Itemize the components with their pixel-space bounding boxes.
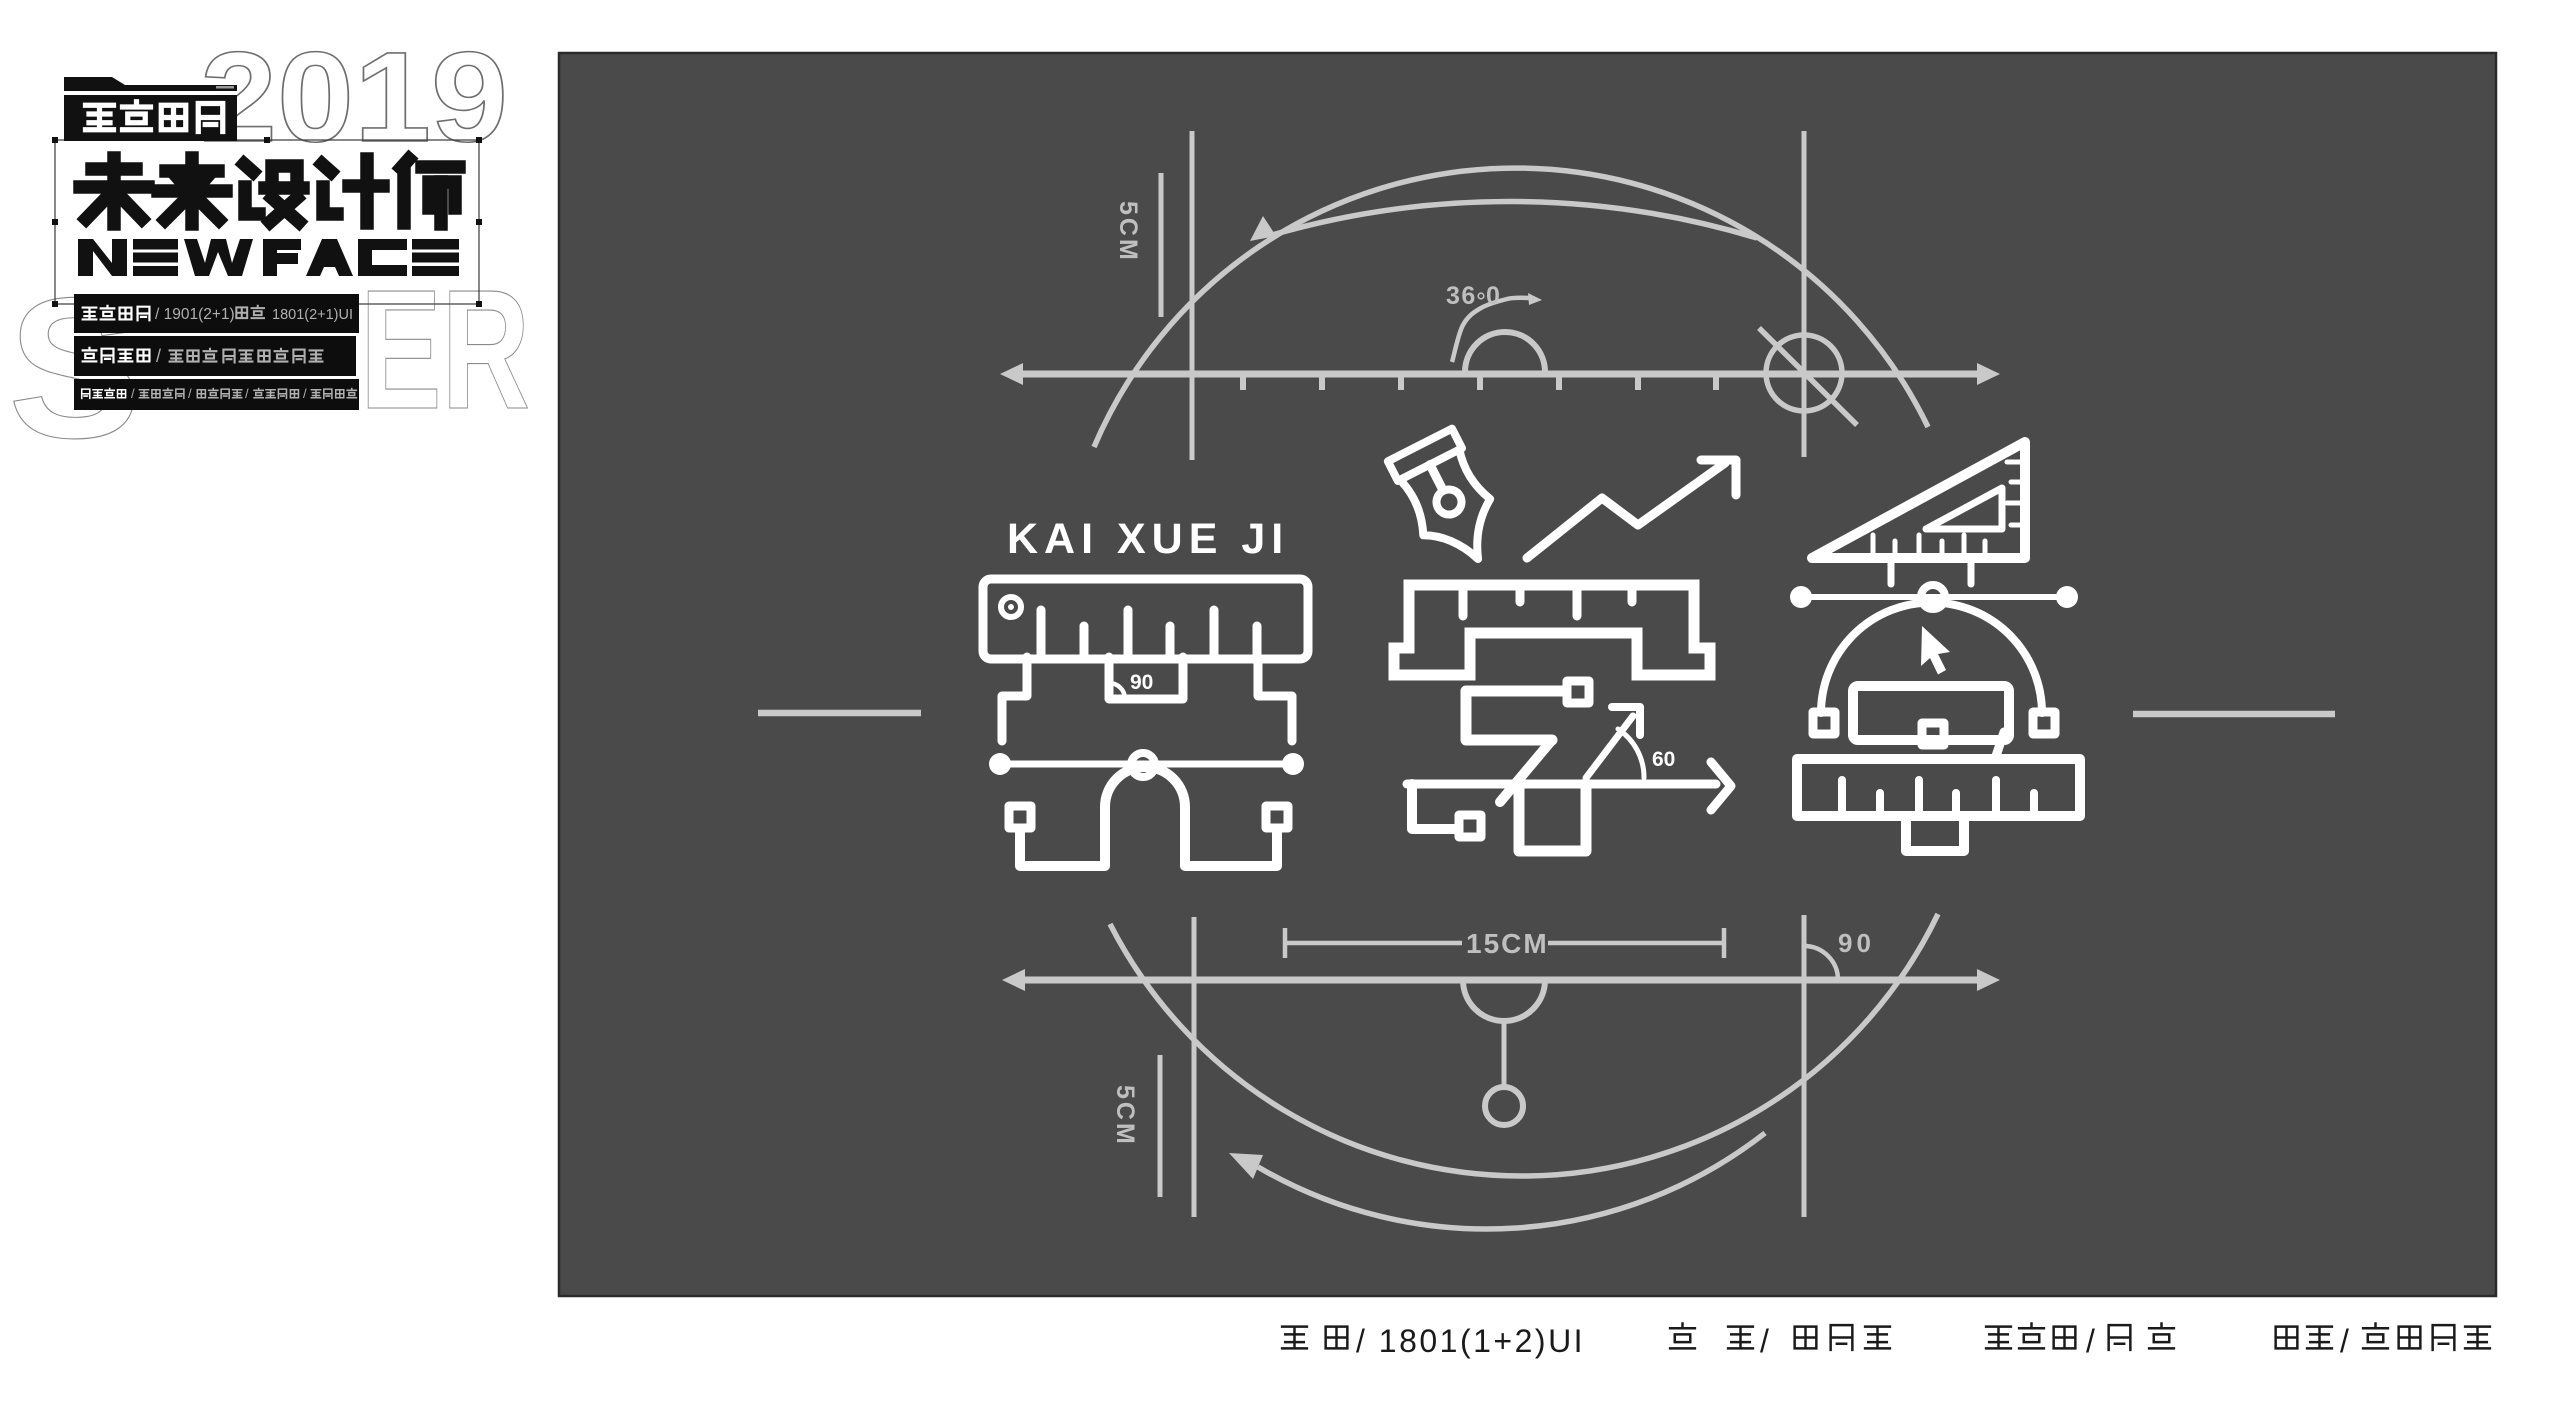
svg-text:/: / [2086,1323,2095,1359]
svg-text:60: 60 [1652,748,1675,771]
svg-text:2019: 2019 [200,26,508,169]
svg-text:/: / [303,386,307,401]
svg-text:0: 0 [1486,282,1500,310]
svg-text:/: / [131,386,135,401]
svg-text:/ 1901(2+1): / 1901(2+1) [155,306,235,323]
svg-text:90: 90 [1130,671,1153,694]
svg-text:KAI XUE JI: KAI XUE JI [1007,515,1289,563]
svg-text:/ 1801(1+2)UI: / 1801(1+2)UI [1356,1323,1585,1359]
svg-text:/: / [245,386,249,401]
svg-text:36: 36 [1446,282,1477,310]
svg-text:ER: ER [360,255,530,445]
svg-text:90: 90 [1838,928,1875,958]
svg-text:1801(2+1)UI: 1801(2+1)UI [272,307,353,323]
svg-text:/: / [2340,1323,2349,1359]
svg-text:5CM: 5CM [1111,1085,1139,1147]
svg-text:/: / [1760,1323,1769,1359]
svg-text:/: / [156,346,161,366]
svg-text:15CM: 15CM [1466,928,1549,959]
svg-text:5CM: 5CM [1114,201,1142,263]
svg-text:/: / [188,386,192,401]
